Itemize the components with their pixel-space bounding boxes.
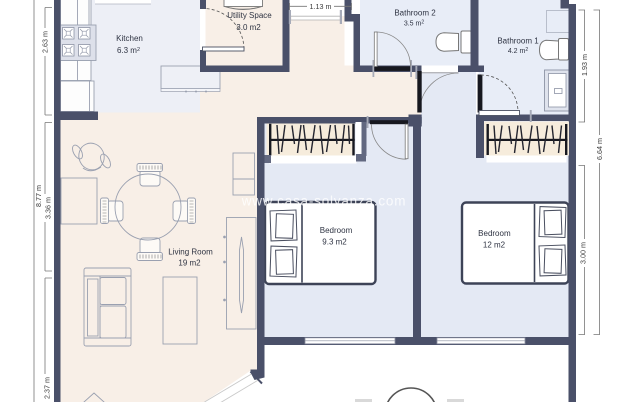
- svg-text:1.13 m: 1.13 m: [310, 2, 332, 11]
- svg-text:Bedroom: Bedroom: [478, 229, 511, 238]
- svg-text:Bathroom 2: Bathroom 2: [394, 8, 436, 17]
- svg-text:4.2 m2: 4.2 m2: [508, 47, 529, 55]
- svg-text:1.93 m: 1.93 m: [580, 54, 589, 76]
- svg-text:8.77 m: 8.77 m: [34, 185, 43, 207]
- svg-text:www.casa-solyanza.com: www.casa-solyanza.com: [241, 194, 407, 209]
- svg-text:3.5 m2: 3.5 m2: [404, 20, 425, 28]
- svg-text:12 m2: 12 m2: [483, 241, 506, 250]
- svg-text:3.00 m: 3.00 m: [578, 242, 587, 264]
- svg-text:2.37 m: 2.37 m: [42, 377, 51, 399]
- svg-text:9.3 m2: 9.3 m2: [322, 238, 347, 247]
- svg-text:19 m2: 19 m2: [178, 259, 201, 268]
- svg-text:3.36 m: 3.36 m: [43, 197, 52, 219]
- svg-text:6.64 m: 6.64 m: [595, 138, 604, 160]
- svg-text:Kitchen: Kitchen: [116, 34, 143, 43]
- svg-text:Utility Space: Utility Space: [227, 11, 272, 20]
- svg-text:Bedroom: Bedroom: [320, 226, 353, 235]
- svg-text:Living Room: Living Room: [168, 247, 213, 256]
- svg-text:3.0 m2: 3.0 m2: [236, 23, 261, 32]
- svg-text:Bathroom 1: Bathroom 1: [497, 36, 539, 45]
- svg-text:6.3 m2: 6.3 m2: [117, 46, 140, 55]
- svg-text:2.63 m: 2.63 m: [40, 31, 49, 53]
